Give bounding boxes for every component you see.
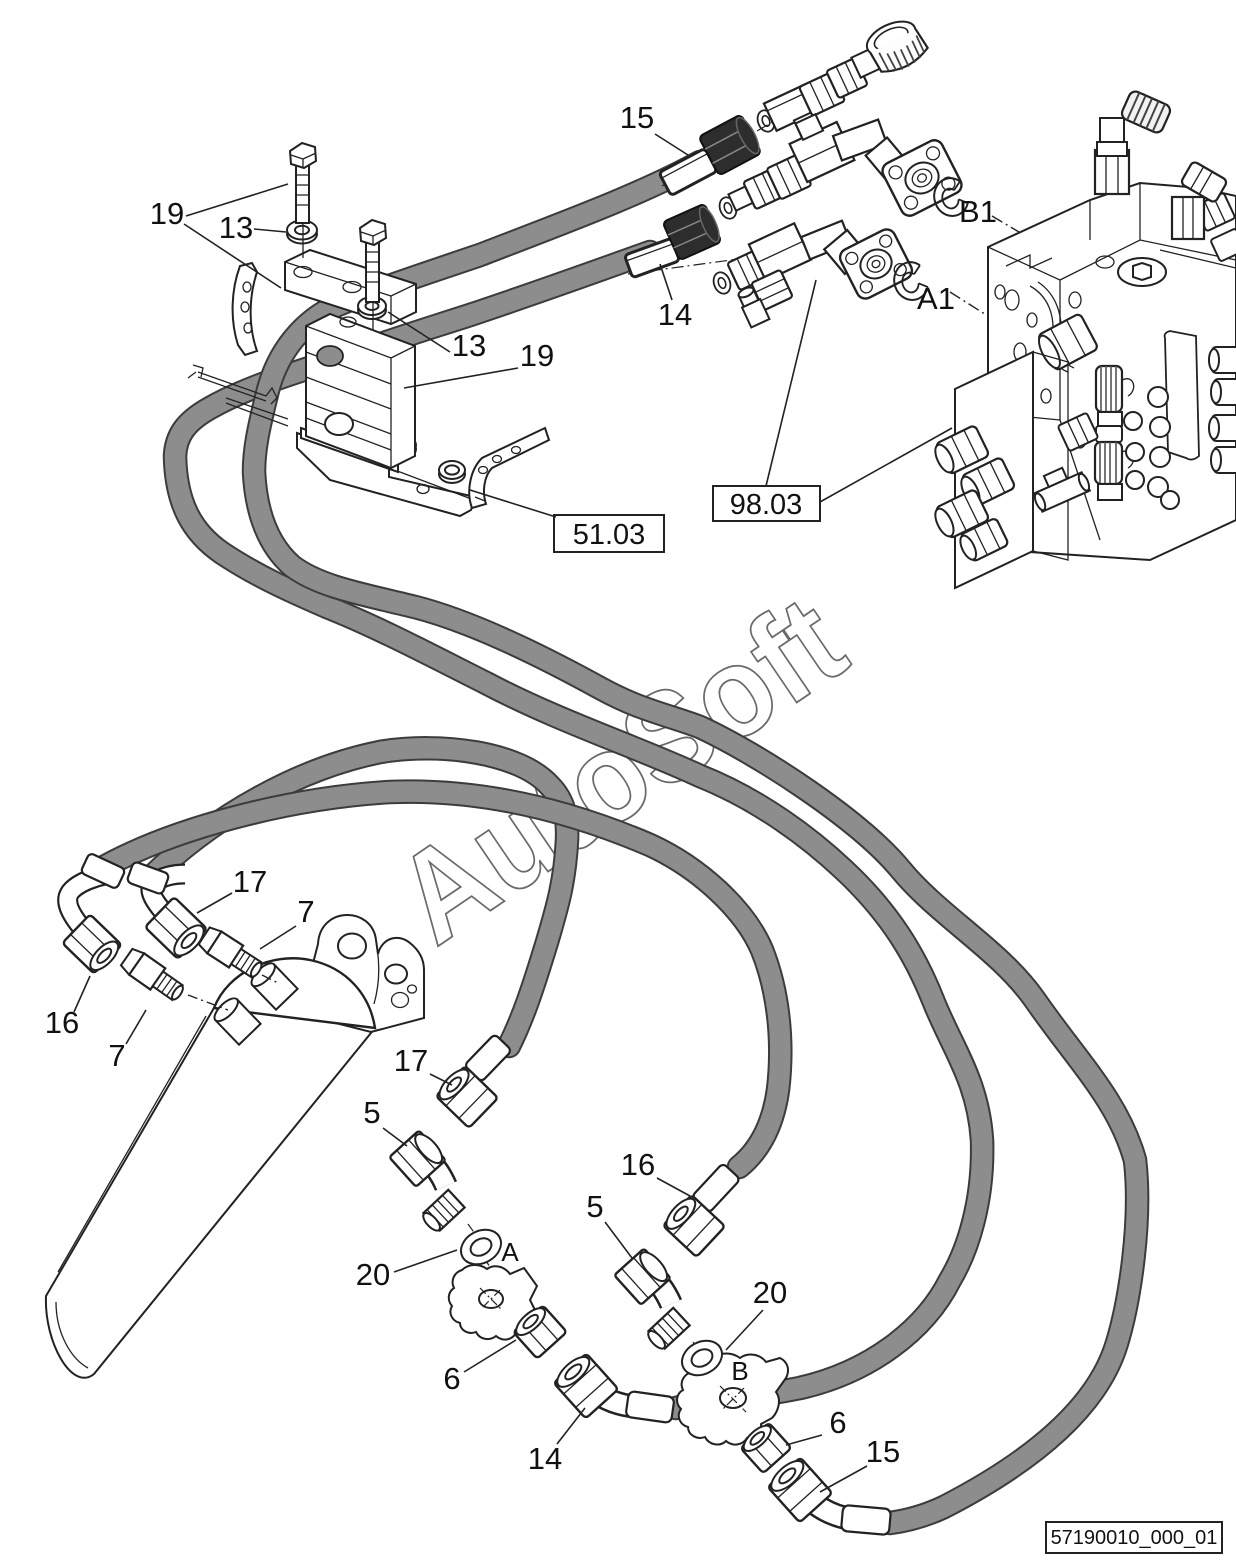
svg-text:6: 6 xyxy=(829,1405,846,1440)
svg-text:20: 20 xyxy=(356,1257,390,1292)
svg-text:13: 13 xyxy=(219,210,253,245)
svg-text:A1: A1 xyxy=(917,281,955,316)
svg-text:20: 20 xyxy=(753,1275,787,1310)
svg-text:17: 17 xyxy=(233,864,267,899)
svg-text:15: 15 xyxy=(866,1434,900,1469)
svg-text:7: 7 xyxy=(108,1038,125,1073)
svg-text:5: 5 xyxy=(363,1095,380,1130)
svg-text:57190010_000_01: 57190010_000_01 xyxy=(1051,1527,1218,1549)
svg-text:98.03: 98.03 xyxy=(730,489,803,521)
svg-text:6: 6 xyxy=(443,1361,460,1396)
svg-text:5: 5 xyxy=(586,1189,603,1224)
svg-text:17: 17 xyxy=(394,1043,428,1078)
svg-text:15: 15 xyxy=(620,100,654,135)
svg-text:A: A xyxy=(501,1237,519,1267)
svg-text:19: 19 xyxy=(520,338,554,373)
svg-text:14: 14 xyxy=(658,297,692,332)
svg-text:19: 19 xyxy=(150,196,184,231)
svg-text:B: B xyxy=(731,1356,748,1386)
svg-text:51.03: 51.03 xyxy=(573,519,646,551)
svg-text:7: 7 xyxy=(297,894,314,929)
svg-text:B1: B1 xyxy=(959,194,997,229)
svg-text:16: 16 xyxy=(621,1147,655,1182)
svg-text:14: 14 xyxy=(528,1441,562,1476)
svg-text:13: 13 xyxy=(452,328,486,363)
